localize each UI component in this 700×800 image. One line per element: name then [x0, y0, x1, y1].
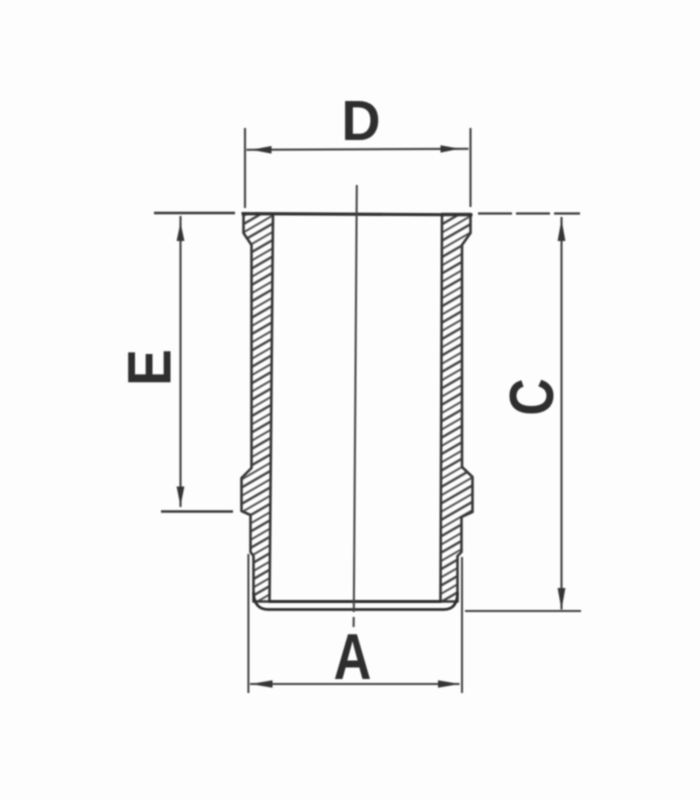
svg-text:D: D: [342, 89, 381, 152]
svg-text:A: A: [334, 622, 372, 693]
svg-text:E: E: [116, 349, 184, 386]
svg-text:C: C: [498, 378, 568, 415]
